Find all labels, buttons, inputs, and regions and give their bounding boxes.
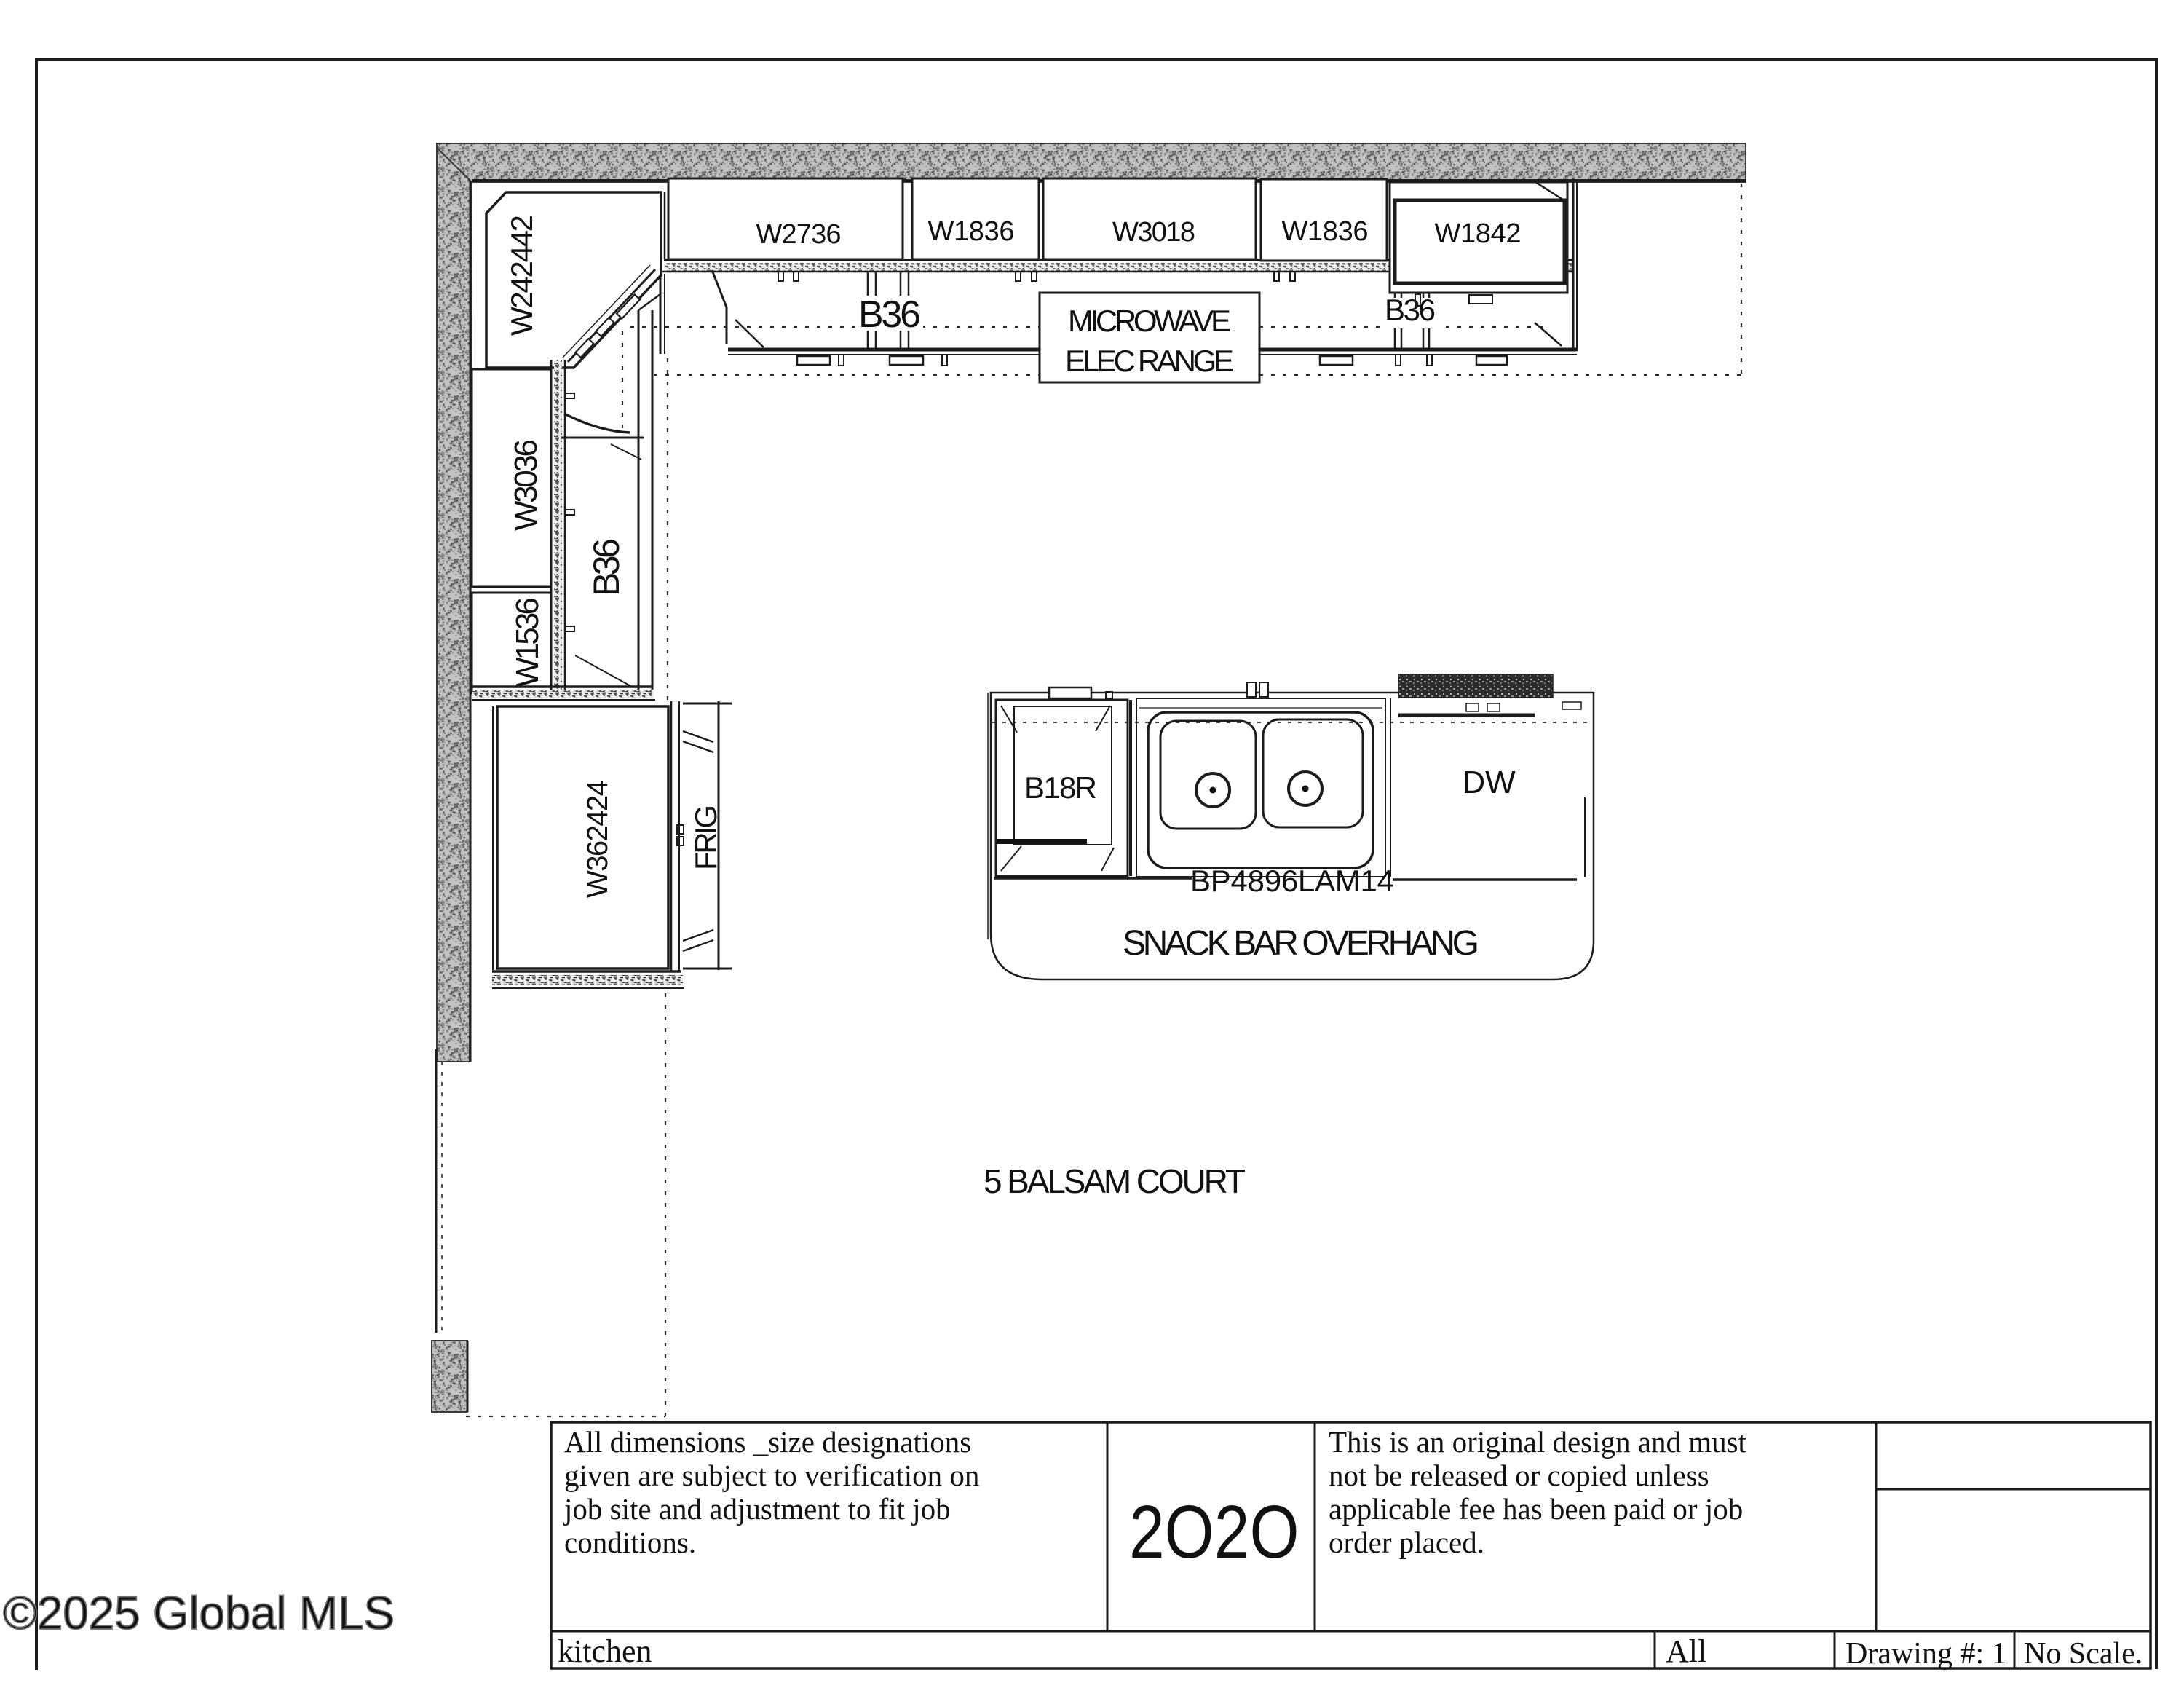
svg-text:B36: B36 — [586, 538, 627, 596]
svg-text:applicable fee has been paid o: applicable fee has been paid or job — [1329, 1492, 1743, 1526]
svg-text:MICROWAVE: MICROWAVE — [1068, 304, 1231, 338]
svg-text:Drawing #: 1: Drawing #: 1 — [1845, 1637, 2007, 1671]
svg-text:SNACK BAR OVERHANG: SNACK BAR OVERHANG — [1123, 924, 1479, 963]
svg-text:This is an original design and: This is an original design and must — [1329, 1425, 1747, 1459]
svg-text:W2736: W2736 — [756, 219, 842, 250]
svg-text:W1536: W1536 — [510, 597, 545, 687]
svg-text:job site and adjustment to fit: job site and adjustment to fit job — [563, 1492, 951, 1526]
svg-text:not be released or copied unle: not be released or copied unless — [1329, 1459, 1709, 1492]
svg-text:No Scale.: No Scale. — [2024, 1637, 2143, 1671]
svg-text:kitchen: kitchen — [558, 1633, 652, 1669]
svg-text:ELEC RANGE: ELEC RANGE — [1065, 344, 1234, 378]
svg-text:order placed.: order placed. — [1329, 1526, 1484, 1559]
svg-text:DW: DW — [1462, 765, 1516, 800]
svg-text:W362424: W362424 — [582, 780, 614, 898]
svg-text:W1836: W1836 — [1282, 216, 1369, 247]
svg-text:W3036: W3036 — [508, 439, 544, 531]
svg-text:BP4896LAM14: BP4896LAM14 — [1190, 864, 1394, 898]
svg-text:FRIG: FRIG — [689, 805, 723, 870]
svg-text:given are subject to verificat: given are subject to verification on — [564, 1459, 979, 1492]
svg-text:5 BALSAM COURT: 5 BALSAM COURT — [984, 1162, 1246, 1200]
svg-text:conditions.: conditions. — [564, 1526, 696, 1559]
svg-text:©2025 Global MLS: ©2025 Global MLS — [3, 1587, 395, 1639]
svg-text:All: All — [1666, 1633, 1706, 1669]
svg-text:B36: B36 — [1385, 293, 1436, 327]
svg-text:All dimensions _size designati: All dimensions _size designations — [564, 1425, 971, 1459]
svg-text:W242442: W242442 — [505, 215, 539, 336]
svg-text:B36: B36 — [858, 293, 921, 336]
svg-text:W1842: W1842 — [1435, 218, 1522, 249]
svg-text:W3018: W3018 — [1112, 217, 1195, 248]
svg-text:B18R: B18R — [1024, 770, 1097, 805]
svg-text:W1836: W1836 — [928, 216, 1015, 247]
svg-text:2O2O: 2O2O — [1129, 1490, 1299, 1574]
